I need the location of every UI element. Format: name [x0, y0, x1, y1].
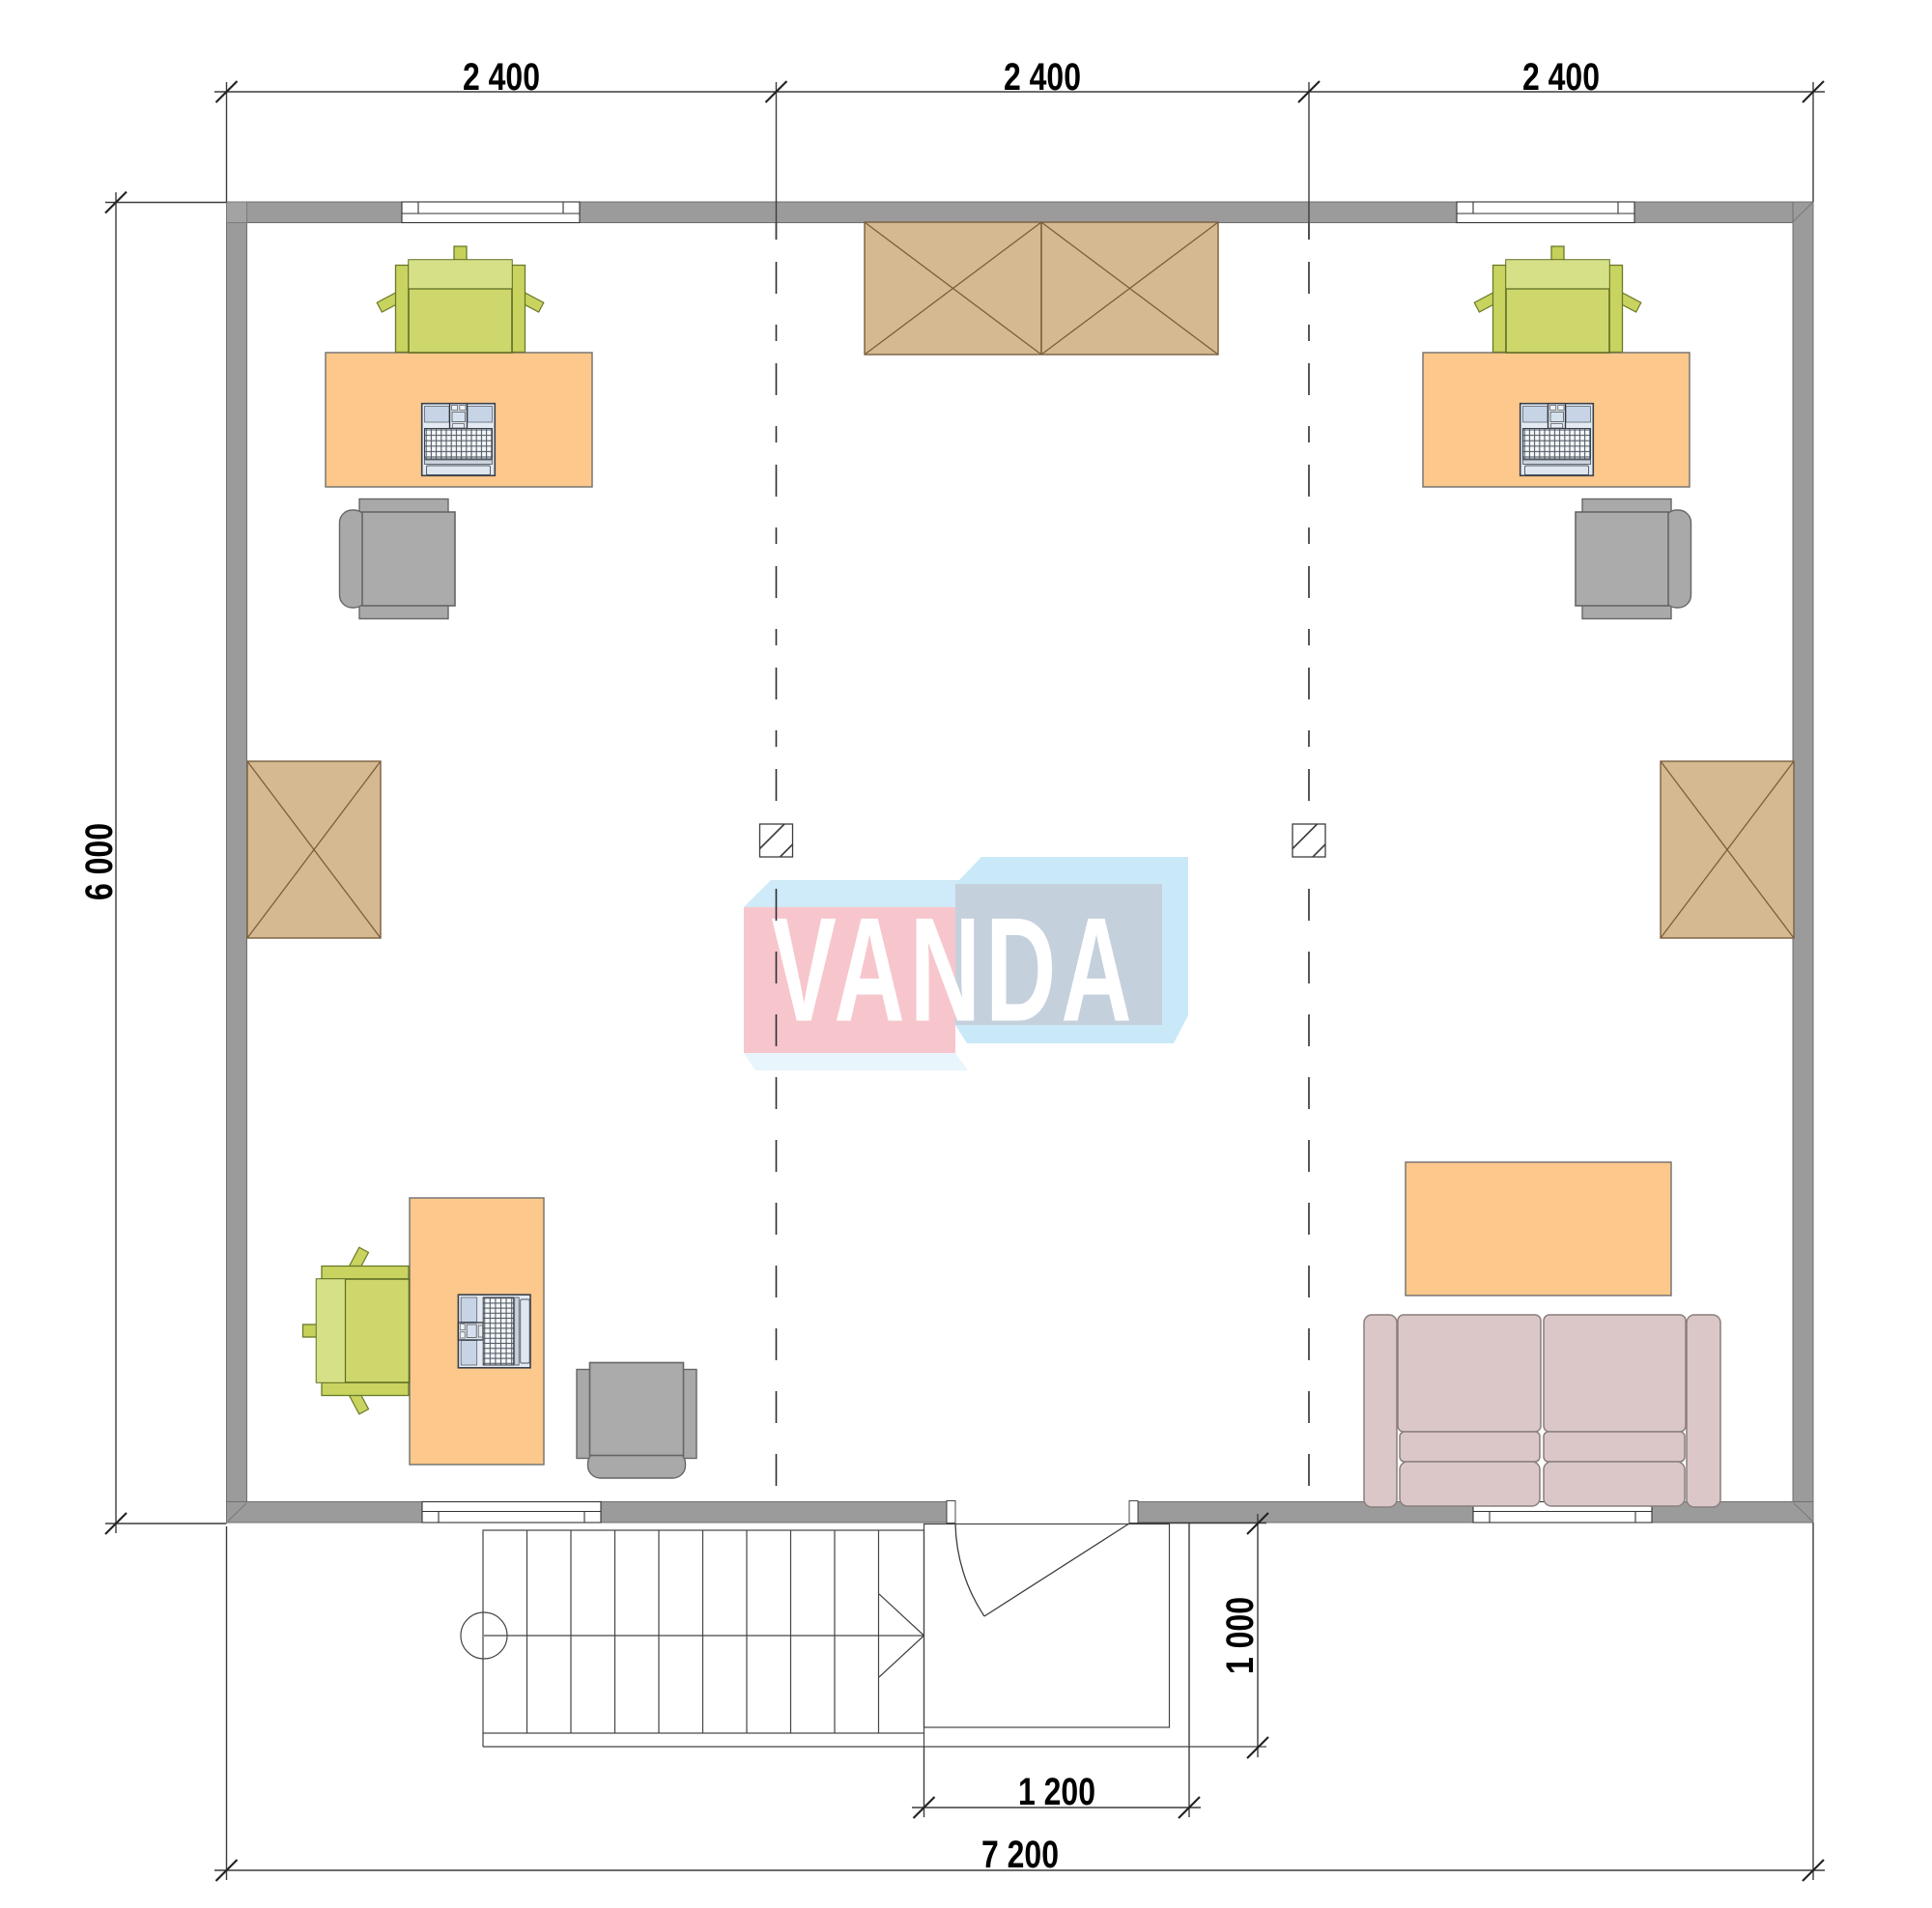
svg-text:VANDA: VANDA: [771, 886, 1136, 1052]
svg-text:7 200: 7 200: [981, 1834, 1059, 1876]
svg-text:2 400: 2 400: [1004, 56, 1081, 99]
svg-text:1 000: 1 000: [1219, 1597, 1262, 1674]
svg-text:2 400: 2 400: [463, 56, 540, 99]
svg-text:1 200: 1 200: [1018, 1771, 1095, 1813]
svg-text:2 400: 2 400: [1522, 56, 1600, 99]
svg-text:6 000: 6 000: [78, 823, 121, 900]
